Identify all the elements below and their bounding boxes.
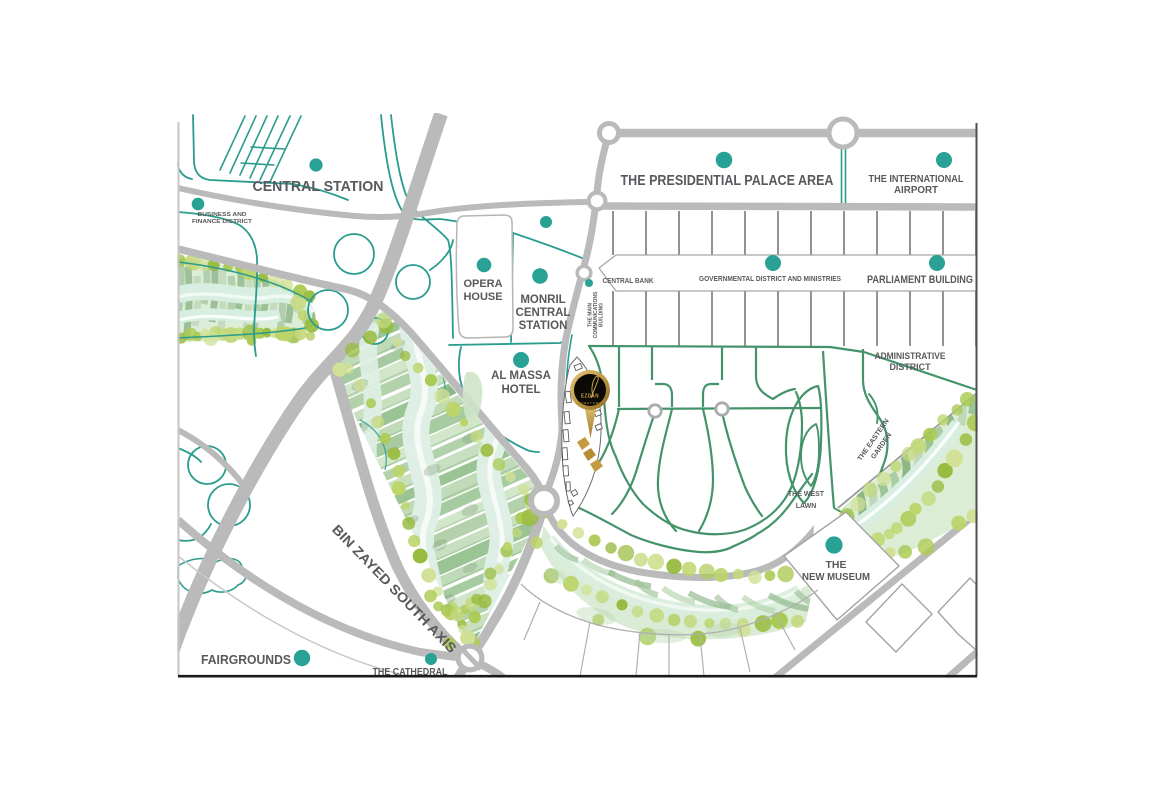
svg-text:LAWN: LAWN — [796, 503, 817, 510]
svg-text:NEW MUSEUM: NEW MUSEUM — [802, 571, 870, 583]
svg-text:HOTEL: HOTEL — [502, 384, 541, 396]
svg-text:STATION: STATION — [519, 320, 568, 332]
svg-text:AIRPORT: AIRPORT — [894, 185, 938, 196]
svg-text:OPERA: OPERA — [463, 278, 502, 290]
svg-text:CENTRAL BANK: CENTRAL BANK — [603, 276, 654, 285]
svg-text:FINANCE DISTRICT: FINANCE DISTRICT — [192, 219, 253, 225]
svg-text:CENTRAL: CENTRAL — [516, 307, 571, 319]
svg-text:BUSINESS AND: BUSINESS AND — [198, 212, 247, 218]
svg-text:EZDAN: EZDAN — [581, 394, 599, 400]
svg-text:ADMINISTRATIVE: ADMINISTRATIVE — [875, 351, 946, 361]
svg-text:THE: THE — [826, 559, 847, 571]
svg-text:DOWNTOWN: DOWNTOWN — [578, 401, 603, 405]
svg-text:THE WEST: THE WEST — [788, 491, 825, 498]
svg-text:CENTRAL STATION: CENTRAL STATION — [253, 178, 384, 195]
svg-text:FAIRGROUNDS: FAIRGROUNDS — [201, 653, 291, 667]
svg-text:PARLIAMENT BUILDING: PARLIAMENT BUILDING — [867, 274, 973, 286]
svg-text:BUILDING: BUILDING — [599, 303, 605, 327]
svg-text:AL MASSA: AL MASSA — [491, 370, 551, 382]
svg-text:THE PRESIDENTIAL PALACE AREA: THE PRESIDENTIAL PALACE AREA — [621, 172, 834, 189]
svg-text:THE INTERNATIONAL: THE INTERNATIONAL — [869, 174, 964, 185]
svg-text:HOUSE: HOUSE — [463, 291, 502, 303]
svg-text:GOVERNMENTAL DISTRICT AND MINI: GOVERNMENTAL DISTRICT AND MINISTRIES — [699, 274, 841, 283]
svg-text:MONRIL: MONRIL — [520, 294, 565, 306]
svg-text:DISTRICT: DISTRICT — [890, 362, 931, 372]
